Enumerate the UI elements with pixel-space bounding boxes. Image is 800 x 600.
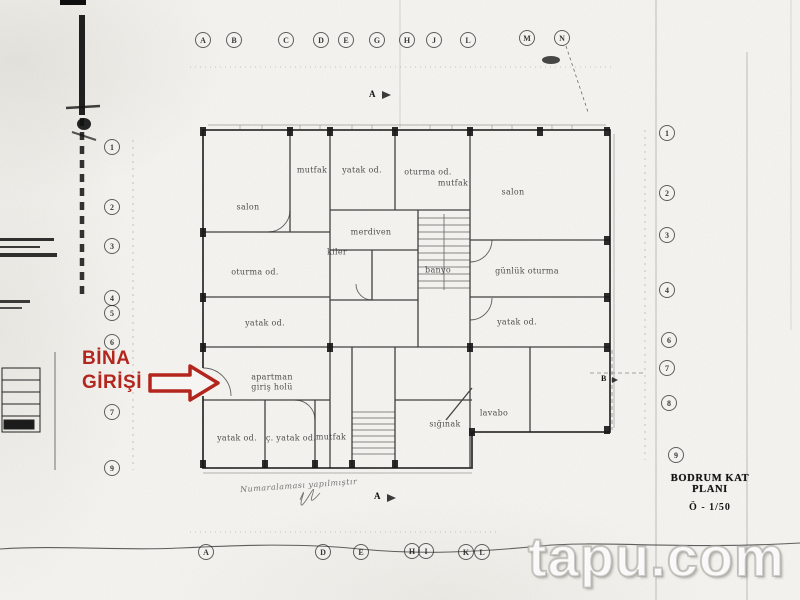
- entrance-annotation: BİNA GİRİŞİ: [82, 347, 142, 396]
- scanned-basement-floor-plan: ABCDEGHJLMNADEHIKL1234567912346789 salon…: [0, 0, 800, 600]
- entrance-label-line1: BİNA: [82, 347, 142, 371]
- entrance-label-line2: GİRİŞİ: [82, 371, 142, 395]
- plan-title: BODRUM KAT PLANI: [652, 473, 768, 495]
- section-marker-a-top: A: [369, 89, 376, 99]
- plan-scale: Ö - 1/50: [652, 502, 768, 513]
- tapu-watermark: tapu.com: [528, 524, 785, 589]
- section-marker-b: B: [601, 374, 606, 383]
- section-marker-a-bottom: A: [374, 491, 381, 501]
- title-block: BODRUM KAT PLANI Ö - 1/50: [652, 473, 768, 513]
